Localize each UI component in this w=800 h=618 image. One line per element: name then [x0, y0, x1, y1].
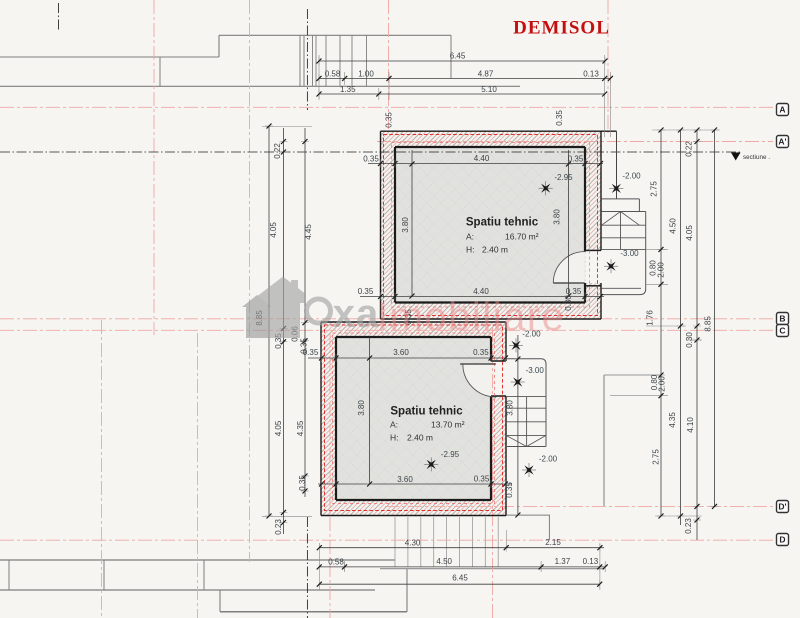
svg-text:0.35: 0.35	[474, 475, 490, 484]
svg-text:A:: A:	[390, 420, 398, 430]
svg-text:H:: H:	[466, 245, 475, 255]
svg-text:0.35: 0.35	[566, 287, 582, 296]
svg-text:1.00: 1.00	[358, 70, 374, 79]
svg-text:2.40 m: 2.40 m	[407, 433, 433, 443]
svg-text:0.13: 0.13	[583, 557, 599, 566]
svg-text:4.50: 4.50	[669, 218, 678, 234]
svg-text:4.05: 4.05	[274, 420, 283, 436]
svg-text:3.80: 3.80	[357, 400, 366, 416]
svg-text:3.60: 3.60	[397, 475, 413, 484]
svg-text:4.05: 4.05	[269, 222, 278, 238]
svg-text:2.00: 2.00	[658, 376, 667, 392]
svg-text:-2.95: -2.95	[441, 450, 460, 459]
svg-text:0.30: 0.30	[685, 332, 694, 348]
svg-text:1.76: 1.76	[646, 310, 655, 326]
svg-text:-3.00: -3.00	[526, 366, 545, 375]
svg-text:4.05: 4.05	[685, 225, 694, 241]
svg-text:xa: xa	[333, 292, 380, 336]
svg-text:0.58: 0.58	[328, 557, 344, 566]
svg-text:2.15: 2.15	[545, 538, 561, 547]
svg-text:-3.00: -3.00	[620, 249, 639, 258]
svg-text:16.70 m²: 16.70 m²	[505, 232, 539, 242]
svg-text:1.37: 1.37	[555, 557, 571, 566]
svg-text:A:: A:	[466, 232, 474, 242]
svg-text:5.10: 5.10	[481, 85, 497, 94]
svg-text:6.45: 6.45	[450, 52, 466, 61]
svg-text:0.35: 0.35	[505, 482, 514, 498]
svg-text:Imobiliare: Imobiliare	[377, 295, 565, 339]
svg-text:6.45: 6.45	[452, 574, 468, 583]
svg-text:D': D'	[778, 502, 786, 512]
svg-text:0.35: 0.35	[568, 155, 584, 164]
svg-text:DEMISOL: DEMISOL	[513, 18, 610, 39]
svg-text:2.75: 2.75	[652, 449, 661, 465]
svg-text:4.50: 4.50	[436, 557, 452, 566]
svg-text:0.35: 0.35	[555, 110, 564, 126]
svg-text:13.70 m²: 13.70 m²	[431, 420, 465, 430]
svg-text:0.35: 0.35	[363, 155, 379, 164]
svg-text:4.35: 4.35	[296, 420, 305, 436]
svg-text:0.23: 0.23	[684, 518, 693, 534]
svg-text:-2.95: -2.95	[554, 173, 573, 182]
svg-text:0.35: 0.35	[300, 338, 309, 354]
svg-text:Spatiu tehnic: Spatiu tehnic	[466, 217, 539, 229]
svg-text:2.00: 2.00	[657, 262, 666, 278]
svg-text:Spatiu tehnic: Spatiu tehnic	[390, 406, 463, 418]
svg-text:C: C	[779, 326, 785, 336]
svg-text:4.40: 4.40	[474, 154, 490, 163]
svg-text:2.75: 2.75	[650, 181, 659, 197]
svg-text:0.35: 0.35	[298, 475, 307, 491]
svg-text:0.22: 0.22	[273, 143, 282, 159]
svg-text:4.35: 4.35	[668, 412, 677, 428]
svg-text:4.87: 4.87	[478, 70, 494, 79]
svg-text:4.45: 4.45	[304, 224, 313, 240]
svg-text:0.58: 0.58	[325, 70, 341, 79]
svg-text:3.80: 3.80	[506, 400, 515, 416]
svg-text:3.80: 3.80	[553, 209, 562, 225]
svg-text:0.13: 0.13	[583, 70, 599, 79]
svg-text:B: B	[779, 314, 785, 324]
svg-text:1.35: 1.35	[340, 85, 356, 94]
svg-text:4.10: 4.10	[686, 417, 695, 433]
svg-text:0.22: 0.22	[685, 141, 694, 157]
svg-text:3.80: 3.80	[401, 217, 410, 233]
svg-text:sectiune .: sectiune .	[743, 154, 770, 161]
svg-text:2.40 m: 2.40 m	[482, 245, 508, 255]
svg-text:3.60: 3.60	[393, 348, 409, 357]
svg-text:A': A'	[778, 137, 786, 147]
svg-text:H:: H:	[390, 433, 399, 443]
svg-text:4.30: 4.30	[405, 539, 421, 548]
svg-text:A: A	[779, 105, 785, 115]
svg-text:0.23: 0.23	[274, 519, 283, 535]
svg-text:8.85: 8.85	[704, 316, 713, 332]
svg-text:0.35: 0.35	[384, 112, 393, 128]
svg-text:-2.00: -2.00	[539, 455, 558, 464]
svg-text:D: D	[779, 535, 785, 545]
svg-text:0.35: 0.35	[473, 348, 489, 357]
svg-text:-2.00: -2.00	[622, 172, 641, 181]
